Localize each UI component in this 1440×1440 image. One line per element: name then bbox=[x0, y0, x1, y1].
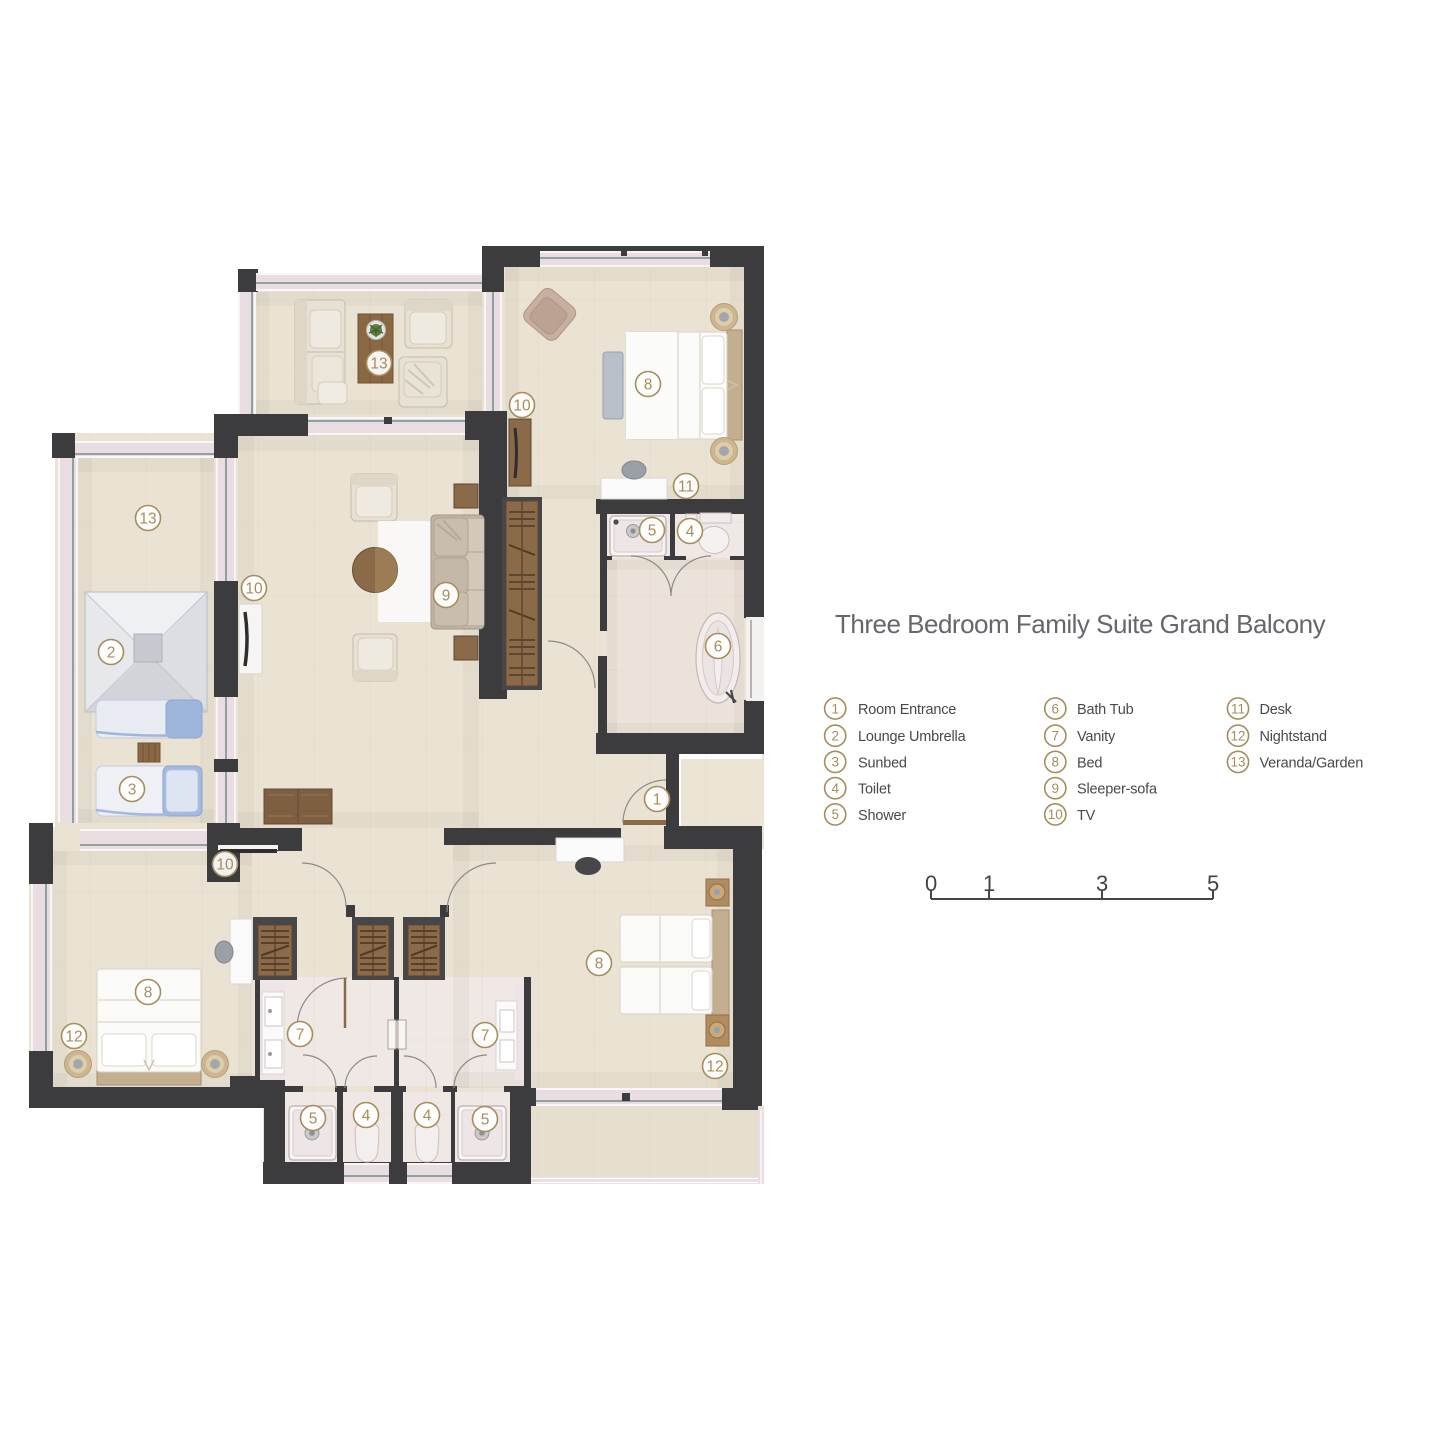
svg-text:Desk: Desk bbox=[1260, 702, 1293, 718]
svg-text:Veranda/Garden: Veranda/Garden bbox=[1260, 755, 1364, 771]
svg-text:11: 11 bbox=[678, 479, 694, 496]
svg-text:Shower: Shower bbox=[858, 808, 906, 824]
svg-text:10: 10 bbox=[1048, 807, 1063, 822]
svg-text:12: 12 bbox=[1230, 729, 1245, 744]
svg-text:Vanity: Vanity bbox=[1077, 729, 1116, 745]
svg-text:9: 9 bbox=[442, 588, 451, 605]
svg-text:5: 5 bbox=[1207, 871, 1219, 896]
svg-text:12: 12 bbox=[65, 1029, 82, 1046]
svg-text:4: 4 bbox=[423, 1108, 432, 1125]
svg-text:10: 10 bbox=[245, 581, 263, 598]
svg-text:13: 13 bbox=[1230, 755, 1245, 770]
svg-text:0: 0 bbox=[925, 871, 937, 896]
svg-text:Lounge Umbrella: Lounge Umbrella bbox=[858, 729, 967, 745]
svg-text:Room Entrance: Room Entrance bbox=[858, 702, 956, 718]
svg-text:8: 8 bbox=[595, 956, 604, 973]
svg-text:13: 13 bbox=[370, 356, 387, 373]
svg-text:5: 5 bbox=[309, 1111, 318, 1128]
svg-text:Sleeper-sofa: Sleeper-sofa bbox=[1077, 782, 1158, 798]
svg-text:2: 2 bbox=[107, 645, 116, 662]
svg-text:4: 4 bbox=[686, 524, 695, 541]
svg-text:9: 9 bbox=[1052, 781, 1060, 796]
svg-text:4: 4 bbox=[362, 1108, 371, 1125]
svg-text:Bed: Bed bbox=[1077, 755, 1102, 771]
svg-text:3: 3 bbox=[1096, 871, 1108, 896]
svg-text:5: 5 bbox=[831, 807, 839, 822]
svg-text:Nightstand: Nightstand bbox=[1260, 729, 1327, 745]
svg-text:13: 13 bbox=[139, 511, 156, 528]
svg-text:6: 6 bbox=[1052, 701, 1060, 716]
svg-text:Bath Tub: Bath Tub bbox=[1077, 702, 1134, 718]
svg-text:10: 10 bbox=[216, 857, 234, 874]
svg-text:3: 3 bbox=[831, 755, 839, 770]
svg-text:Sunbed: Sunbed bbox=[858, 755, 907, 771]
svg-text:3: 3 bbox=[128, 782, 137, 799]
svg-text:5: 5 bbox=[481, 1112, 490, 1129]
svg-text:TV: TV bbox=[1077, 808, 1096, 824]
svg-text:Three Bedroom Family Suite Gra: Three Bedroom Family Suite Grand Balcony bbox=[835, 609, 1326, 639]
svg-text:1: 1 bbox=[983, 871, 995, 896]
svg-text:7: 7 bbox=[296, 1027, 305, 1044]
svg-text:10: 10 bbox=[513, 398, 531, 415]
svg-text:12: 12 bbox=[706, 1059, 723, 1076]
svg-text:1: 1 bbox=[831, 701, 839, 716]
svg-text:5: 5 bbox=[648, 523, 657, 540]
svg-text:1: 1 bbox=[653, 792, 662, 809]
svg-text:4: 4 bbox=[831, 781, 839, 796]
svg-text:7: 7 bbox=[1052, 729, 1060, 744]
svg-text:11: 11 bbox=[1231, 701, 1245, 716]
svg-text:8: 8 bbox=[644, 377, 653, 394]
svg-text:8: 8 bbox=[1052, 755, 1060, 770]
svg-text:Toilet: Toilet bbox=[858, 782, 891, 798]
svg-text:7: 7 bbox=[481, 1028, 490, 1045]
svg-text:6: 6 bbox=[714, 639, 723, 656]
svg-text:2: 2 bbox=[831, 729, 839, 744]
svg-text:8: 8 bbox=[144, 985, 153, 1002]
